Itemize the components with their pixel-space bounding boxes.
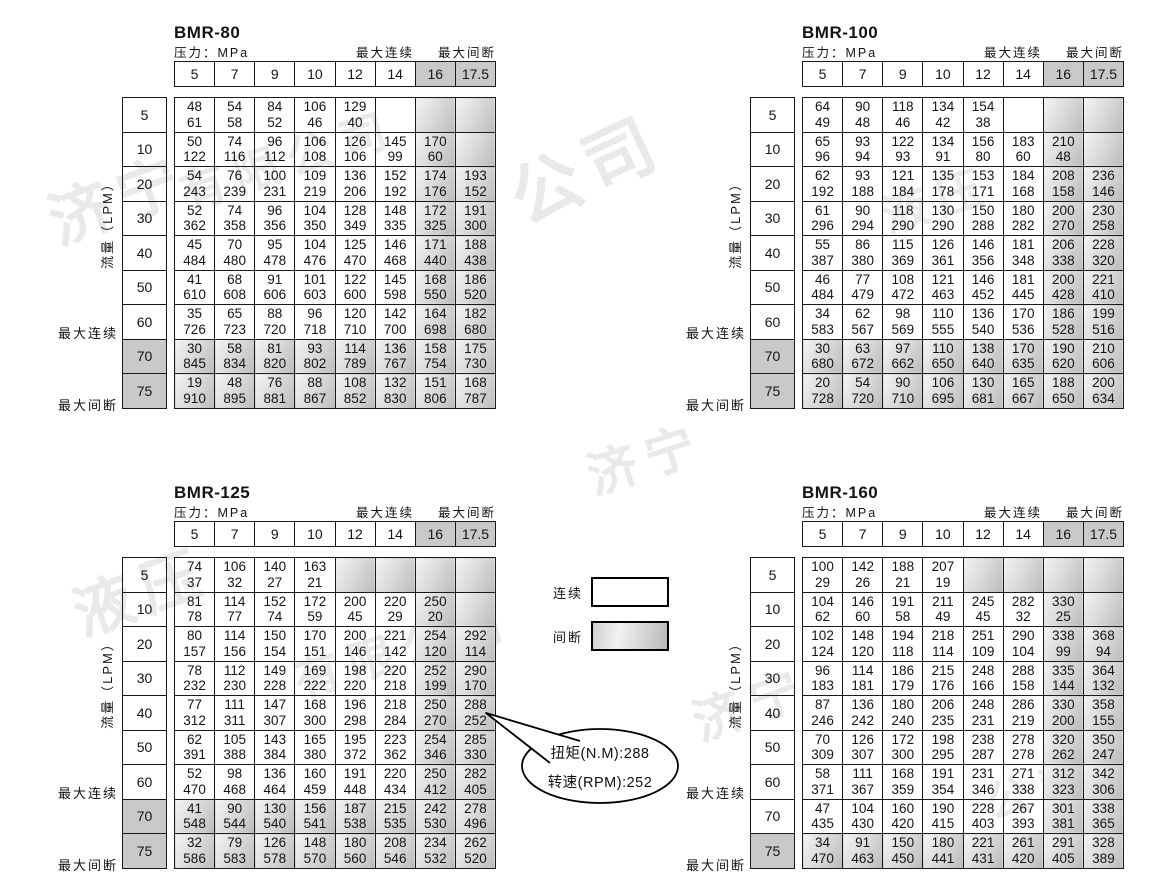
- torque-value: 188: [1044, 375, 1083, 391]
- speed-value: 845: [175, 356, 214, 372]
- torque-value: 242: [416, 801, 455, 817]
- speed-value: 46: [295, 115, 334, 131]
- data-cell: 169222: [295, 661, 335, 696]
- data-cell: 106695: [923, 374, 963, 409]
- speed-value: 32: [215, 575, 254, 591]
- data-cell: 58371: [803, 765, 843, 800]
- data-cell: 301381: [1043, 799, 1083, 834]
- torque-value: 130: [255, 801, 294, 817]
- torque-value: 172: [416, 203, 455, 219]
- data-cell: 74116: [215, 132, 255, 167]
- speed-value: 583: [215, 851, 254, 867]
- speed-value: 176: [416, 184, 455, 200]
- pressure-col-header: 14: [375, 522, 415, 547]
- speed-value: 484: [175, 253, 214, 269]
- torque-value: 170: [295, 628, 334, 644]
- torque-value: 136: [255, 766, 294, 782]
- data-cell: 181445: [1003, 270, 1043, 305]
- data-cell: 208158: [1043, 167, 1083, 202]
- speed-value: 124: [803, 644, 842, 660]
- data-cell: 76239: [215, 167, 255, 202]
- watermark-text: 公司: [491, 86, 679, 245]
- data-cell: 147307: [255, 696, 295, 731]
- data-cell: [335, 558, 375, 593]
- data-cell: 80157: [175, 627, 215, 662]
- torque-value: 248: [964, 697, 1003, 713]
- torque-value: 87: [803, 697, 842, 713]
- torque-value: 130: [923, 203, 962, 219]
- data-cell: 187538: [335, 799, 375, 834]
- data-cell: 88720: [255, 305, 295, 340]
- speed-value: 603: [295, 287, 334, 303]
- torque-value: 121: [883, 168, 922, 184]
- data-cell: 218114: [923, 627, 963, 662]
- torque-value: 250: [416, 697, 455, 713]
- data-cell: 15680: [963, 132, 1003, 167]
- torque-value: 190: [923, 801, 962, 817]
- data-cell: 8452: [255, 98, 295, 133]
- speed-value: 42: [923, 115, 962, 131]
- speed-value: 298: [336, 713, 375, 729]
- data-cell: 136767: [375, 339, 415, 374]
- speed-value: 40: [336, 115, 375, 131]
- pressure-col-header: 7: [843, 522, 883, 547]
- speed-value: 27: [255, 575, 294, 591]
- speed-value: 21: [295, 575, 334, 591]
- speed-value: 168: [1004, 184, 1043, 200]
- speed-value: 389: [1084, 851, 1123, 867]
- pressure-col-header: 12: [335, 62, 375, 87]
- torque-value: 196: [336, 697, 375, 713]
- max-intermittent-row-label: 最大间断: [662, 395, 746, 414]
- torque-value: 105: [215, 732, 254, 748]
- catalog-page: 济宁有限公司公司济宁液压有限公司济宁液压公司 BMR-80压力：MPa最大连续最…: [0, 0, 1160, 895]
- speed-value: 384: [255, 747, 294, 763]
- flow-axis-label-wrap: 流量（LPM）: [714, 127, 754, 317]
- data-cell: 221431: [963, 834, 1003, 869]
- data-cell: 180441: [923, 834, 963, 869]
- speed-value: 881: [255, 391, 294, 407]
- torque-value: 182: [456, 306, 495, 322]
- torque-value: 146: [964, 272, 1003, 288]
- speed-value: 199: [416, 678, 455, 694]
- speed-value: 20: [416, 609, 455, 625]
- torque-value: 290: [456, 663, 495, 679]
- speed-value: 46: [883, 115, 922, 131]
- torque-value: 70: [215, 237, 254, 253]
- torque-value: 98: [215, 766, 254, 782]
- torque-value: 122: [883, 134, 922, 150]
- torque-value: 106: [923, 375, 962, 391]
- data-cell: 126361: [923, 236, 963, 271]
- speed-value: 192: [803, 184, 842, 200]
- speed-value: 555: [923, 322, 962, 338]
- data-cell: 350247: [1083, 730, 1123, 765]
- torque-value: 228: [964, 801, 1003, 817]
- speed-value: 464: [255, 782, 294, 798]
- torque-value: 104: [843, 801, 882, 817]
- data-cell: 190415: [923, 799, 963, 834]
- flow-row-header: 75: [123, 834, 167, 869]
- speed-value: 354: [923, 782, 962, 798]
- flow-row-header: 10: [751, 132, 795, 167]
- torque-value: 93: [843, 134, 882, 150]
- flow-row-header: 10: [123, 132, 167, 167]
- pressure-col-header: 17.5: [455, 522, 495, 547]
- speed-value: 610: [175, 287, 214, 303]
- data-cell: 171440: [415, 236, 455, 271]
- data-cell: 261420: [1003, 834, 1043, 869]
- data-cell: 198295: [923, 730, 963, 765]
- torque-value: 150: [964, 203, 1003, 219]
- data-cell: 184168: [1003, 167, 1043, 202]
- data-cell: 10646: [295, 98, 335, 133]
- flow-axis-label: 流量（LPM）: [97, 176, 116, 269]
- data-cell: 251109: [963, 627, 1003, 662]
- speed-value: 834: [215, 356, 254, 372]
- data-cell: 215176: [923, 661, 963, 696]
- speed-value: 528: [1044, 322, 1083, 338]
- pressure-col-header: 7: [215, 62, 255, 87]
- data-cell: 110650: [923, 339, 963, 374]
- torque-value: 220: [376, 594, 415, 610]
- speed-value: 45: [964, 609, 1003, 625]
- flow-row-header: 10: [751, 592, 795, 627]
- data-cell: 228320: [1083, 236, 1123, 271]
- speed-value: 158: [1004, 678, 1043, 694]
- data-cell: 126578: [255, 834, 295, 869]
- data-cell: 132830: [375, 374, 415, 409]
- pressure-col-header: 16: [415, 522, 455, 547]
- data-cell: 90294: [843, 201, 883, 236]
- speed-value: 391: [175, 747, 214, 763]
- speed-value: 114: [923, 644, 962, 660]
- torque-value: 143: [255, 732, 294, 748]
- speed-value: 307: [255, 713, 294, 729]
- speed-value: 338: [1044, 253, 1083, 269]
- speed-value: 94: [1084, 644, 1123, 660]
- torque-value: 48: [215, 375, 254, 391]
- speed-value: 730: [456, 356, 495, 372]
- data-cell: 228403: [963, 799, 1003, 834]
- speed-value: 61: [175, 115, 214, 131]
- torque-value: 134: [923, 134, 962, 150]
- data-cell: 148335: [375, 201, 415, 236]
- torque-value: 114: [215, 628, 254, 644]
- torque-value: 251: [964, 628, 1003, 644]
- speed-value: 58: [883, 609, 922, 625]
- data-cell: 68608: [215, 270, 255, 305]
- table-subheader: 压力：MPa最大连续最大间断: [174, 44, 496, 61]
- speed-value: 306: [1084, 782, 1123, 798]
- legend-continuous-label: 连续: [547, 583, 583, 602]
- speed-value: 200: [1044, 713, 1083, 729]
- speed-value: 600: [336, 287, 375, 303]
- flow-row-header: 60: [751, 305, 795, 340]
- torque-value: 146: [964, 237, 1003, 253]
- data-cell: 54720: [843, 374, 883, 409]
- torque-value: 180: [883, 697, 922, 713]
- data-cell: 364132: [1083, 661, 1123, 696]
- data-cell: 158754: [415, 339, 455, 374]
- flow-row-header: 40: [751, 696, 795, 731]
- legend-row-intermittent: 间断: [547, 621, 669, 651]
- data-cell: 88867: [295, 374, 335, 409]
- torque-value: 200: [336, 594, 375, 610]
- speed-value: 142: [376, 644, 415, 660]
- max-intermittent-row-label: 最大间断: [662, 855, 746, 874]
- torque-value: 186: [1044, 306, 1083, 322]
- speed-value: 176: [923, 678, 962, 694]
- speed-value: 26: [843, 575, 882, 591]
- speed-value: 530: [416, 816, 455, 832]
- torque-value: 54: [175, 168, 214, 184]
- speed-value: 541: [295, 816, 334, 832]
- table-block-bmr-125: BMR-125压力：MPa最大连续最大间断5791012141617.55102…: [34, 475, 509, 895]
- data-cell: 181348: [1003, 236, 1043, 271]
- speed-value: 157: [175, 644, 214, 660]
- data-cell: 95478: [255, 236, 295, 271]
- speed-value: 93: [883, 149, 922, 165]
- speed-value: 635: [1004, 356, 1043, 372]
- torque-value: 163: [295, 559, 334, 575]
- data-cell: 254120: [415, 627, 455, 662]
- torque-value: 111: [215, 697, 254, 713]
- torque-value: 19: [175, 375, 214, 391]
- data-cell: 108472: [883, 270, 923, 305]
- data-cell: 97662: [883, 339, 923, 374]
- speed-value: 410: [1084, 287, 1123, 303]
- data-cell: 218284: [375, 696, 415, 731]
- speed-value: 296: [803, 218, 842, 234]
- speed-value: 459: [295, 782, 334, 798]
- data-cell: 35726: [175, 305, 215, 340]
- data-cell: 4861: [175, 98, 215, 133]
- torque-value: 301: [1044, 801, 1083, 817]
- speed-value: 548: [175, 816, 214, 832]
- torque-value: 110: [923, 341, 962, 357]
- data-cell: 48895: [215, 374, 255, 409]
- speed-value: 470: [803, 851, 842, 867]
- data-cell: 30680: [803, 339, 843, 374]
- data-cell: 130290: [923, 201, 963, 236]
- torque-value: 169: [295, 663, 334, 679]
- flow-row-header: 5: [123, 558, 167, 593]
- torque-value: 95: [255, 237, 294, 253]
- data-cell: 288158: [1003, 661, 1043, 696]
- pressure-unit-label: 压力：MPa: [174, 42, 249, 61]
- flow-row-header: 50: [123, 730, 167, 765]
- torque-value: 282: [1004, 594, 1043, 610]
- data-cell: 79583: [215, 834, 255, 869]
- speed-value: 606: [255, 287, 294, 303]
- speed-value: 240: [883, 713, 922, 729]
- torque-value: 207: [923, 559, 962, 575]
- torque-value: 81: [175, 594, 214, 610]
- torque-value: 30: [803, 341, 842, 357]
- speed-value: 184: [883, 184, 922, 200]
- speed-value: 698: [416, 322, 455, 338]
- torque-value: 20: [803, 375, 842, 391]
- torque-value: 261: [1004, 835, 1043, 851]
- speed-value: 608: [215, 287, 254, 303]
- max-continuous-col-label: 最大连续: [356, 42, 414, 61]
- data-cell: 91463: [843, 834, 883, 869]
- speed-value: 21: [883, 575, 922, 591]
- speed-value: 222: [295, 678, 334, 694]
- pressure-header-table: 5791012141617.5: [802, 521, 1124, 547]
- data-cell: 271338: [1003, 765, 1043, 800]
- max-continuous-col-label: 最大连续: [984, 502, 1042, 521]
- data-cell: 238287: [963, 730, 1003, 765]
- speed-value: 728: [803, 391, 842, 407]
- speed-value: 480: [215, 253, 254, 269]
- data-cell: 118290: [883, 201, 923, 236]
- data-cell: 198220: [335, 661, 375, 696]
- speed-value: 802: [295, 356, 334, 372]
- torque-value: 100: [255, 168, 294, 184]
- speed-value: 787: [456, 391, 495, 407]
- torque-value: 65: [803, 134, 842, 150]
- data-cell: 22029: [375, 592, 415, 627]
- data-cell: 120710: [335, 305, 375, 340]
- speed-value: 112: [255, 149, 294, 165]
- speed-value: 388: [215, 747, 254, 763]
- torque-value: 330: [1044, 594, 1083, 610]
- torque-value: 245: [964, 594, 1003, 610]
- data-cell: 130540: [255, 799, 295, 834]
- speed-value: 367: [843, 782, 882, 798]
- speed-value: 723: [215, 322, 254, 338]
- torque-value: 81: [255, 341, 294, 357]
- speed-value: 323: [1044, 782, 1083, 798]
- torque-value: 154: [964, 99, 1003, 115]
- data-cell: 11846: [883, 98, 923, 133]
- data-cell: 114789: [335, 339, 375, 374]
- speed-value: 179: [883, 678, 922, 694]
- torque-value: 47: [803, 801, 842, 817]
- torque-value: 210: [1084, 341, 1123, 357]
- speed-value: 262: [1044, 747, 1083, 763]
- speed-value: 516: [1084, 322, 1123, 338]
- torque-value: 168: [456, 375, 495, 391]
- data-cell: 125470: [335, 236, 375, 271]
- table-block-bmr-80: BMR-80压力：MPa最大连续最大间断5791012141617.551020…: [34, 15, 509, 455]
- speed-value: 476: [295, 253, 334, 269]
- flow-axis-label-wrap: 流量（LPM）: [86, 587, 126, 777]
- torque-value: 193: [456, 168, 495, 184]
- torque-value: 254: [416, 732, 455, 748]
- torque-value: 118: [883, 203, 922, 219]
- speed-value: 91: [923, 149, 962, 165]
- torque-value: 156: [295, 801, 334, 817]
- torque-value: 191: [456, 203, 495, 219]
- torque-value: 54: [843, 375, 882, 391]
- speed-value: 188: [843, 184, 882, 200]
- data-cell: 292114: [455, 627, 495, 662]
- data-cell: 101603: [295, 270, 335, 305]
- pressure-header-table: 5791012141617.5: [174, 521, 496, 547]
- speed-value: 650: [923, 356, 962, 372]
- max-continuous-row-label: 最大连续: [662, 323, 746, 342]
- torque-value: 172: [883, 732, 922, 748]
- data-cell: 112230: [215, 661, 255, 696]
- data-cell: 13491: [923, 132, 963, 167]
- torque-value: 91: [255, 272, 294, 288]
- torque-value: 41: [175, 272, 214, 288]
- speed-value: 718: [295, 322, 334, 338]
- torque-value: 148: [376, 203, 415, 219]
- data-cell: 174176: [415, 167, 455, 202]
- torque-value: 52: [175, 203, 214, 219]
- data-table: 4861545884521064612940501227411696112106…: [174, 97, 496, 409]
- max-intermittent-col-label: 最大间断: [438, 502, 496, 521]
- speed-value: 403: [964, 816, 1003, 832]
- pressure-col-header: 14: [375, 62, 415, 87]
- torque-value: 180: [1004, 203, 1043, 219]
- flow-row-header: 5: [751, 98, 795, 133]
- data-cell: 18821: [883, 558, 923, 593]
- speed-value: 520: [456, 287, 495, 303]
- torque-value: 195: [336, 732, 375, 748]
- data-cell: 90710: [883, 374, 923, 409]
- speed-value: 349: [336, 218, 375, 234]
- data-cell: 146356: [963, 236, 1003, 271]
- data-cell: 210606: [1083, 339, 1123, 374]
- data-cell: 110555: [923, 305, 963, 340]
- speed-value: 479: [843, 287, 882, 303]
- speed-value: 287: [964, 747, 1003, 763]
- data-cell: 55387: [803, 236, 843, 271]
- torque-value: 61: [803, 203, 842, 219]
- speed-value: 430: [843, 816, 882, 832]
- pressure-col-header: 12: [963, 62, 1003, 87]
- speed-value: 99: [1044, 644, 1083, 660]
- torque-value: 136: [964, 306, 1003, 322]
- speed-value: 463: [843, 851, 882, 867]
- torque-value: 126: [336, 134, 375, 150]
- data-cell: 291405: [1043, 834, 1083, 869]
- max-intermittent-row-label: 最大间断: [34, 855, 118, 874]
- pressure-col-header: 10: [923, 522, 963, 547]
- torque-value: 90: [843, 99, 882, 115]
- speed-value: 206: [336, 184, 375, 200]
- data-cell: 231346: [963, 765, 1003, 800]
- torque-value: 126: [843, 732, 882, 748]
- torque-value: 104: [295, 203, 334, 219]
- torque-value: 150: [255, 628, 294, 644]
- speed-value: 282: [1004, 218, 1043, 234]
- speed-value: 171: [964, 184, 1003, 200]
- speed-value: 325: [416, 218, 455, 234]
- speed-value: 435: [803, 816, 842, 832]
- data-cell: 76881: [255, 374, 295, 409]
- data-cell: 146452: [963, 270, 1003, 305]
- data-cell: 138640: [963, 339, 1003, 374]
- torque-value: 76: [255, 375, 294, 391]
- torque-value: 68: [215, 272, 254, 288]
- speed-value: 830: [376, 391, 415, 407]
- data-cell: 335144: [1043, 661, 1083, 696]
- speed-value: 346: [964, 782, 1003, 798]
- torque-value: 86: [843, 237, 882, 253]
- speed-value: 48: [843, 115, 882, 131]
- max-continuous-col-label: 最大连续: [984, 42, 1042, 61]
- speed-value: 806: [416, 391, 455, 407]
- speed-value: 415: [923, 816, 962, 832]
- data-cell: 52362: [175, 201, 215, 236]
- speed-value: 450: [883, 851, 922, 867]
